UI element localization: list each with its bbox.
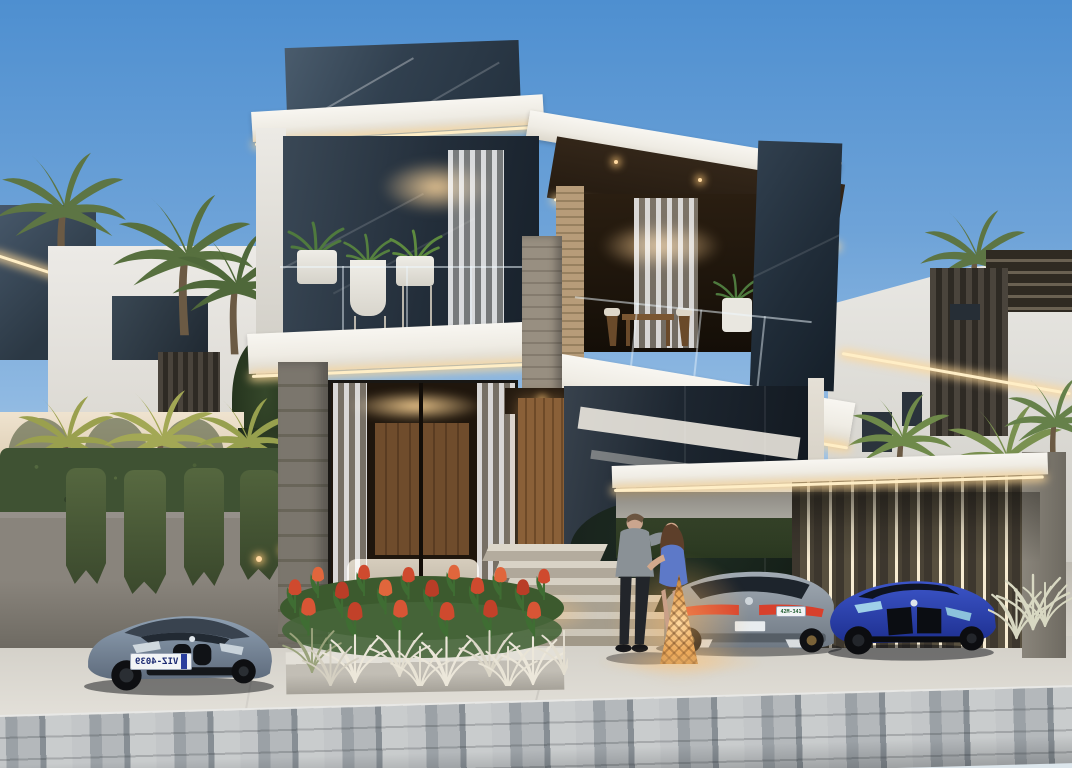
marble-vein: [750, 217, 843, 306]
reflection-canopy: [578, 407, 801, 460]
grass-plume: [479, 647, 537, 686]
flowerbed: [276, 556, 568, 686]
wall-light: [256, 556, 262, 562]
middle-car-plate-text: 42M-341: [780, 609, 801, 615]
car-right-blue-sports-coupe: [824, 548, 1004, 662]
villa-dusk-scene: VIZ-4039 42M-341: [0, 0, 1072, 768]
ivy-curtain: [184, 468, 224, 586]
left-car-license-plate: VIZ-4039: [130, 653, 192, 670]
plate-eu-band: [181, 654, 187, 669]
middle-car-license-plate: 42M-341: [776, 606, 806, 617]
ivy-curtain: [240, 470, 280, 580]
ivy-curtain: [66, 468, 106, 584]
cove-light-glow: [349, 391, 483, 421]
right-villa-window: [950, 304, 980, 320]
lantern-ground-light-pool: [598, 648, 762, 676]
ivy-curtain: [124, 470, 166, 594]
stone-centre-column: [522, 236, 562, 392]
left-car-plate-text: VIZ-4039: [135, 657, 178, 667]
grass-plume-cluster: [988, 556, 1072, 642]
recessed-ceiling-light: [698, 178, 702, 182]
car-left-grayblue-coupe: [80, 586, 278, 696]
recessed-ceiling-light: [614, 160, 618, 164]
